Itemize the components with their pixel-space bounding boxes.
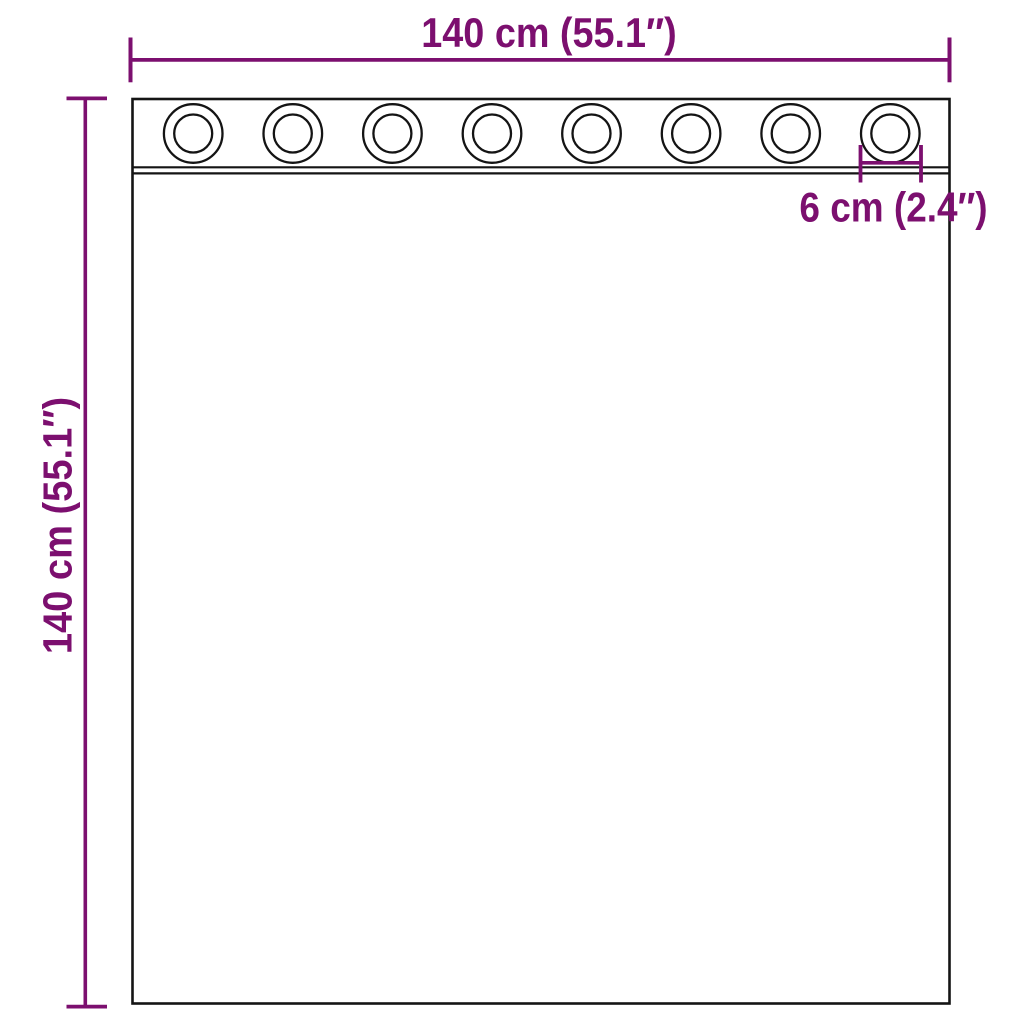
- svg-text:6 cm (2.4″): 6 cm (2.4″): [799, 185, 987, 232]
- svg-text:140 cm (55.1″): 140 cm (55.1″): [35, 397, 80, 654]
- svg-text:140 cm (55.1″): 140 cm (55.1″): [421, 10, 676, 56]
